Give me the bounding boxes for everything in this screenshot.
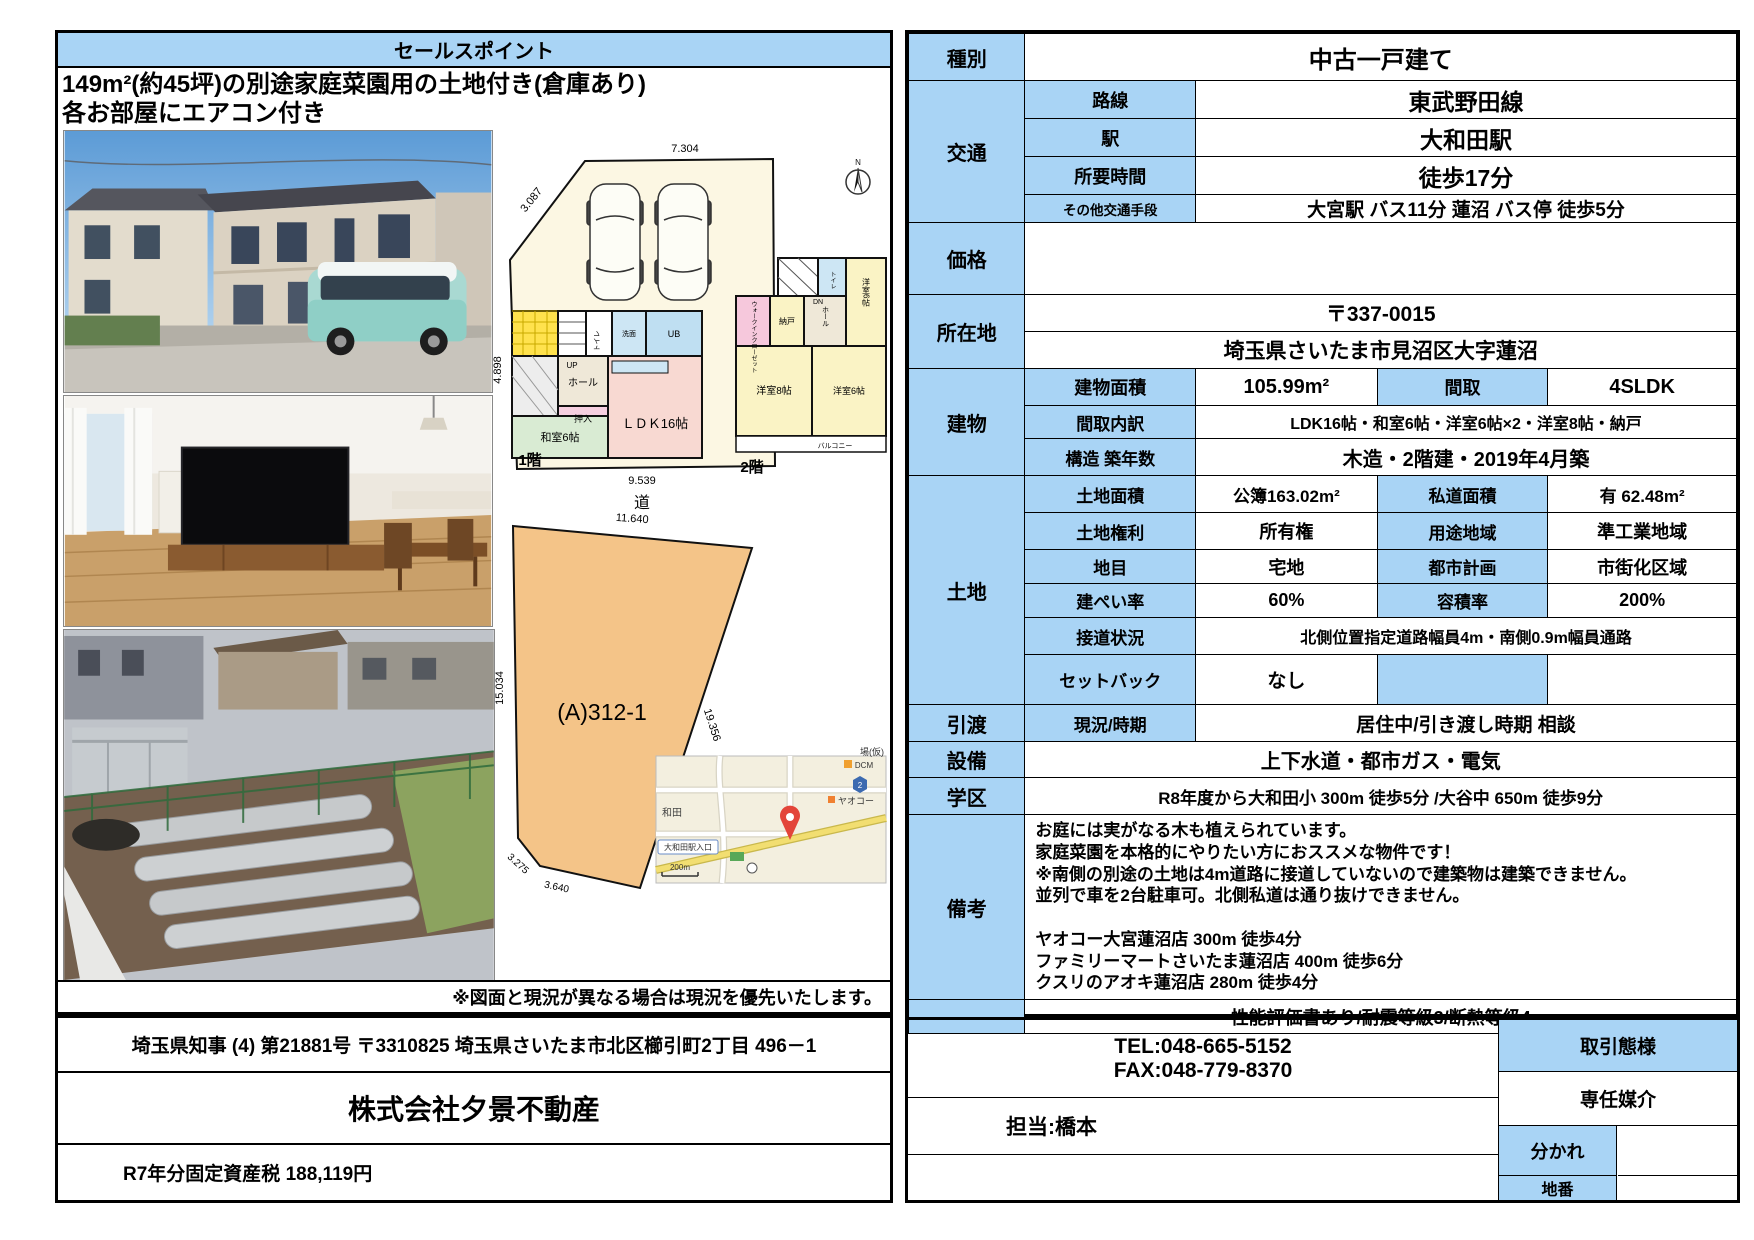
row-price-label: 価格 — [909, 223, 1025, 295]
plot-dim-b2: 3.640 — [543, 880, 570, 896]
remark-line: クスリのアオキ蓮沼店 280m 徒歩4分 — [1035, 972, 1726, 994]
building-area-label: 建物面積 — [1025, 369, 1196, 406]
fax: FAX:048-779-8370 — [1114, 1059, 1293, 1083]
yaoko-icon — [828, 796, 835, 803]
tax-row: R7年分固定資産税 188,119円 — [58, 1145, 890, 1200]
oshiire-label: 押入 — [574, 413, 592, 424]
y8-label: 洋室8帖 — [756, 384, 792, 397]
wic-label: ウォークインクローゼット — [750, 301, 757, 373]
dn-label: DN — [813, 299, 823, 306]
license-row: 埼玉県知事 (4) 第21881号 〒3310825 埼玉県さいたま市北区櫛引町… — [58, 1018, 890, 1073]
bus-stop-icon — [747, 863, 757, 873]
row-facilities-label: 設備 — [909, 742, 1025, 778]
building-kozo-label: 構造 築年数 — [1025, 439, 1196, 476]
agency-block: 埼玉県知事 (4) 第21881号 〒3310825 埼玉県さいたま市北区櫛引町… — [55, 1015, 893, 1203]
sales-point-title: セールスポイント — [394, 35, 554, 64]
access-other-label: その他交通手段 — [1025, 195, 1196, 223]
access-station-value: 大和田駅 — [1196, 119, 1737, 157]
land-setback-label: セットバック — [1025, 655, 1196, 705]
land-area-value: 公簿163.02m² — [1196, 476, 1378, 513]
compass-icon: N — [846, 158, 870, 194]
wakare-label: 分かれ — [1499, 1126, 1617, 1176]
car-icon — [655, 184, 711, 300]
building-kozo-value: 木造・2階建・2019年4月築 — [1196, 439, 1737, 476]
location-map: 2 DCM 場(仮) ヤオコー 和田 大和田駅入口 — [656, 746, 886, 883]
ldk-label: ＬＤＫ16帖 — [622, 416, 688, 431]
land-right-label: 土地権利 — [1025, 513, 1196, 550]
empty-cell — [908, 1155, 1499, 1200]
remark-line: 家庭菜園を本格的にやりたい方におススメな物件です！ — [1035, 842, 1726, 864]
left-content: N 7.304 3.087 4.898 17.706 9.539 道 — [58, 128, 890, 984]
spec-table: 種別 中古一戸建て 交通 路線 東武野田線 駅 大和田駅 所要時間 徒歩17分 … — [908, 33, 1737, 1034]
toilet2-label: トイレ — [829, 271, 836, 289]
agent-cell: 担当:橋本 — [908, 1098, 1499, 1155]
row-access-label: 交通 — [909, 81, 1025, 223]
access-line-label: 路線 — [1025, 81, 1196, 119]
svg-text:2: 2 — [858, 781, 863, 790]
ub-label: UB — [668, 329, 681, 339]
up-label: UP — [566, 361, 577, 370]
row-type-value: 中古一戸建て — [1025, 34, 1737, 81]
toilet-label: トイレ — [594, 331, 601, 352]
minivan — [308, 262, 467, 355]
svg-text:大和田駅入口: 大和田駅入口 — [664, 842, 712, 852]
dim-left: 4.898 — [492, 356, 504, 384]
balcony-label: バルコニー — [818, 442, 853, 450]
plot-dim-left: 15.034 — [494, 671, 506, 705]
tel-fax-cell: TEL:048-665-5152 FAX:048-779-8370 — [908, 1020, 1499, 1098]
chiban-label: 地番 — [1499, 1176, 1617, 1200]
land-right-value: 所有権 — [1196, 513, 1378, 550]
wakare-value-empty — [1618, 1126, 1738, 1176]
building-madori-label: 間取 — [1377, 369, 1548, 406]
drawing-note-text: ※図面と現況が異なる場合は現況を優先いたします。 — [452, 984, 882, 1010]
land-toshi-value: 市街化区域 — [1548, 550, 1737, 584]
svg-text:200m: 200m — [670, 863, 690, 872]
dim-bottom: 9.539 — [628, 475, 656, 487]
photo-exterior — [63, 130, 493, 393]
location-zip: 〒337-0015 — [1025, 295, 1737, 332]
land-youto-label: 用途地域 — [1377, 513, 1548, 550]
building-uchiwake-label: 間取内訳 — [1025, 406, 1196, 439]
land-kenpei-label: 建ぺい率 — [1025, 584, 1196, 618]
land-yoseki-label: 容積率 — [1377, 584, 1548, 618]
row-type-label: 種別 — [909, 34, 1025, 81]
hall2-label: ホール — [822, 306, 830, 327]
wakare-text: 分かれ — [1531, 1138, 1585, 1164]
transaction-type-label: 取引態様 — [1499, 1020, 1737, 1072]
agent-name: 担当:橋本 — [1006, 1111, 1097, 1141]
remark-line: ヤオコー大宮蓮沼店 300m 徒歩4分 — [1035, 929, 1726, 951]
plot-dim-right: 19.356 — [701, 707, 723, 743]
transaction-type-text: 取引態様 — [1580, 1032, 1656, 1059]
compost-bags — [72, 819, 140, 851]
sales-line-1: 149m²(約45坪)の別途家庭菜園用の土地付き(倉庫あり) — [62, 70, 886, 99]
dim-diag: 3.087 — [518, 186, 545, 215]
access-line-value: 東武野田線 — [1196, 81, 1737, 119]
land-setback-value: なし — [1196, 655, 1378, 705]
photo-garden — [63, 629, 495, 981]
compass-n: N — [855, 158, 861, 167]
access-other-value: 大宮駅 バス11分 蓮沼 バス停 徒歩5分 — [1196, 195, 1737, 223]
neighbor-house — [65, 189, 216, 328]
remark-line: ※南側の別途の土地は4m道路に接道していないので建築物は建築できません。 — [1035, 864, 1726, 886]
contact-block: TEL:048-665-5152 FAX:048-779-8370 担当:橋本 … — [905, 1017, 1740, 1203]
drawing-note: ※図面と現況が異なる場合は現況を優先いたします。 — [58, 980, 890, 1012]
road-label: 道 — [634, 494, 650, 512]
property-flyer: セールスポイント 149m²(約45坪)の別途家庭菜園用の土地付き(倉庫あり) … — [0, 0, 1754, 1240]
window-curtains — [65, 408, 152, 535]
remark-line: 並列で車を2台駐車可。北側私道は通り抜けできません。 — [1035, 885, 1726, 907]
access-station-label: 駅 — [1025, 119, 1196, 157]
building-uchiwake-value: LDK16帖・和室6帖・洋室6帖×2・洋室8帖・納戸 — [1196, 406, 1737, 439]
dcm-icon — [844, 760, 852, 768]
washitsu-label: 和室6帖 — [540, 430, 579, 444]
land-shido-value: 有 62.48m² — [1548, 476, 1737, 513]
plot-dim-top: 11.640 — [615, 512, 649, 526]
photo-interior — [63, 395, 493, 627]
handover-sub-label: 現況/時期 — [1025, 705, 1196, 742]
remark-line: ファミリーマートさいたま蓮沼店 400m 徒歩6分 — [1035, 951, 1726, 973]
transaction-type-value: 専任媒介 — [1499, 1072, 1737, 1126]
land-toshi-label: 都市計画 — [1377, 550, 1548, 584]
wada-label: 和田 — [662, 807, 682, 819]
station-icon — [730, 852, 744, 861]
plot-dim-b1: 3.275 — [505, 852, 531, 877]
floor1-label: 1階 — [518, 451, 541, 469]
row-building-label: 建物 — [909, 369, 1025, 476]
land-youto-value: 準工業地域 — [1548, 513, 1737, 550]
left-panel: セールスポイント 149m²(約45坪)の別途家庭菜園用の土地付き(倉庫あり) … — [55, 30, 893, 1015]
ba-label: 場(仮) — [860, 746, 884, 757]
land-chimoku-value: 宅地 — [1196, 550, 1378, 584]
drawings-column: N 7.304 3.087 4.898 17.706 9.539 道 — [490, 128, 890, 984]
land-yoseki-value: 200% — [1548, 584, 1737, 618]
wash-label: 洗面 — [622, 329, 636, 338]
row-school-label: 学区 — [909, 778, 1025, 815]
location-address: 埼玉県さいたま市見沼区大字蓮沼 — [1025, 332, 1737, 369]
access-time-value: 徒歩17分 — [1196, 157, 1737, 195]
sales-point-text: 149m²(約45坪)の別途家庭菜園用の土地付き(倉庫あり) 各お部屋にエアコン… — [58, 68, 890, 128]
land-chimoku-label: 地目 — [1025, 550, 1196, 584]
chiban-text: 地番 — [1541, 1176, 1573, 1200]
dim-top: 7.304 — [671, 143, 699, 155]
sales-point-header: セールスポイント — [58, 33, 890, 68]
land-kenpei-value: 60% — [1196, 584, 1378, 618]
land-shido-label: 私道面積 — [1377, 476, 1548, 513]
row-remarks-label: 備考 — [909, 815, 1025, 1000]
chiban-value-empty — [1618, 1176, 1738, 1200]
plot-name: (A)312-1 — [557, 699, 646, 725]
row-location-label: 所在地 — [909, 295, 1025, 369]
remarks-cell: お庭には実がなる木も植えられています。 家庭菜園を本格的にやりたい方におススメな… — [1025, 815, 1737, 1000]
car-icon — [587, 184, 643, 300]
background-houses — [64, 630, 494, 719]
transaction-type-value-text: 専任媒介 — [1580, 1085, 1656, 1112]
remark-line: お庭には実がなる木も植えられています。 — [1035, 820, 1726, 842]
remark-line — [1035, 907, 1726, 929]
yaoko-label: ヤオコー — [838, 796, 874, 806]
land-area-label: 土地面積 — [1025, 476, 1196, 513]
handover-value: 居住中/引き渡し時期 相談 — [1196, 705, 1737, 742]
row-handover-label: 引渡 — [909, 705, 1025, 742]
facilities-value: 上下水道・都市ガス・電気 — [1025, 742, 1737, 778]
sales-line-2: 各お部屋にエアコン付き — [62, 99, 886, 128]
floor2-label: 2階 — [740, 458, 763, 476]
y6a-label: 洋室6帖 — [862, 277, 871, 307]
row-land-label: 土地 — [909, 476, 1025, 705]
hall-label: ホール — [568, 377, 598, 389]
building-madori-value: 4SLDK — [1548, 369, 1737, 406]
spec-table-wrap: 種別 中古一戸建て 交通 路線 東武野田線 駅 大和田駅 所要時間 徒歩17分 … — [905, 30, 1740, 1017]
land-empty-cell — [1548, 655, 1737, 705]
tel: TEL:048-665-5152 — [1114, 1035, 1291, 1059]
company-name: 株式会社夕景不動産 — [58, 1073, 890, 1145]
station-entrance-badge: 大和田駅入口 — [658, 840, 718, 854]
land-setsudo-value: 北側位置指定道路幅員4m・南側0.9m幅員通路 — [1196, 618, 1737, 655]
dcm-label: DCM — [855, 761, 874, 770]
nando-label: 納戸 — [779, 316, 795, 326]
land-empty-blue-cell — [1377, 655, 1548, 705]
land-setsudo-label: 接道状況 — [1025, 618, 1196, 655]
access-time-label: 所要時間 — [1025, 157, 1196, 195]
school-value: R8年度から大和田小 300m 徒歩5分 /大谷中 650m 徒歩9分 — [1025, 778, 1737, 815]
hedge — [65, 316, 160, 346]
row-price-value — [1025, 223, 1737, 295]
building-area-value: 105.99m² — [1196, 369, 1378, 406]
y6b-label: 洋室6帖 — [833, 385, 865, 396]
